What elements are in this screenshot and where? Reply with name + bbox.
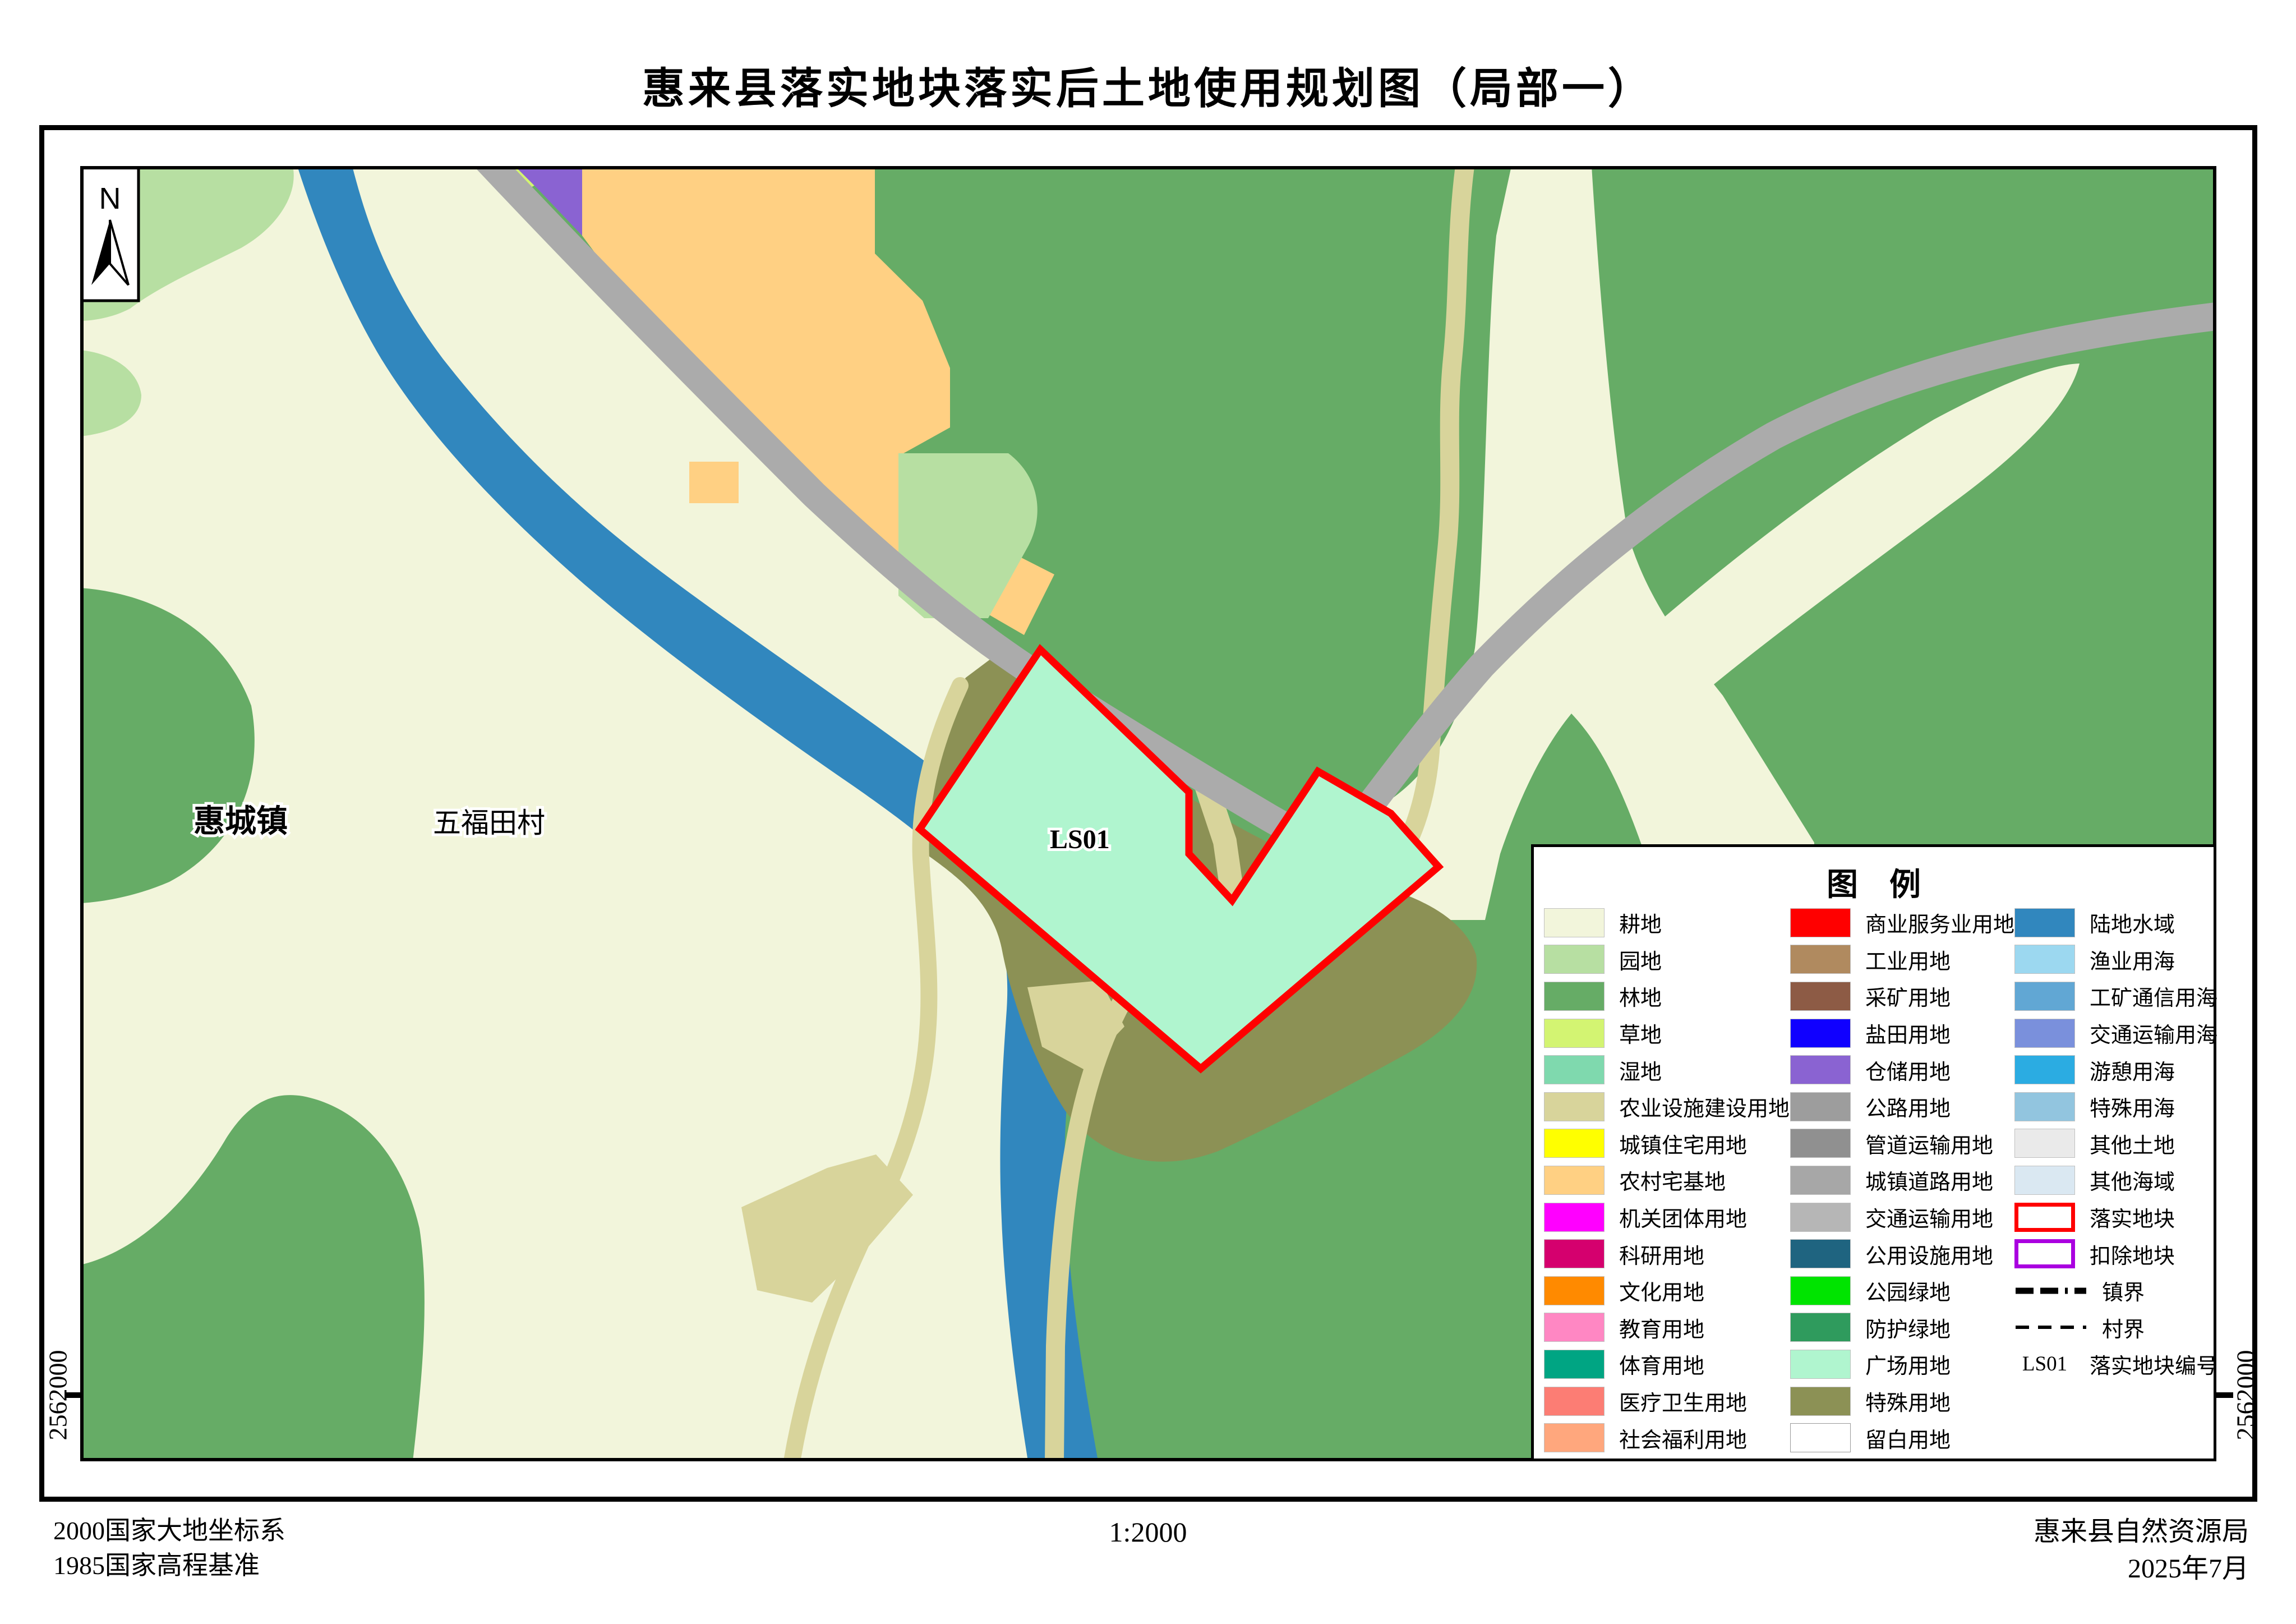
legend-label: 科研用地: [1619, 1239, 1704, 1269]
legend-label: 城镇道路用地: [1865, 1165, 1993, 1195]
legend-swatch: [1790, 1203, 1851, 1232]
legend-swatch: [1790, 908, 1851, 937]
town-label: 惠城镇: [193, 804, 288, 839]
legend-label: 其他土地: [2090, 1128, 2175, 1159]
legend-item: 社会福利用地: [1544, 1419, 1791, 1456]
legend-item: 耕地: [1544, 904, 1791, 941]
legend-item: 机关团体用地: [1544, 1199, 1791, 1236]
legend-item: 农业设施建设用地: [1544, 1088, 1791, 1125]
legend-label: 渔业用海: [2090, 944, 2175, 975]
legend-swatch: [1544, 1019, 1605, 1048]
plot-ls01-label: LS01: [1050, 825, 1110, 854]
legend-swatch: [1544, 1129, 1605, 1158]
legend-title: 图 例: [1534, 859, 2214, 905]
legend-item: 游憩用海: [2014, 1051, 2216, 1088]
legend-swatch: [1544, 1239, 1605, 1268]
legend-swatch: [2014, 1055, 2075, 1084]
legend-item: 镇界: [2014, 1272, 2216, 1309]
legend-item: 其他土地: [2014, 1125, 2216, 1162]
legend-label: 园地: [1619, 944, 1662, 975]
legend-swatch: [1544, 1055, 1605, 1084]
legend-item: 工矿通信用海: [2014, 978, 2216, 1015]
legend-swatch: [1790, 1313, 1851, 1342]
legend-label: 城镇住宅用地: [1619, 1128, 1747, 1159]
legend-swatch: [2014, 945, 2075, 974]
legend-label: 教育用地: [1619, 1312, 1704, 1343]
village-label: 五福田村: [433, 807, 545, 839]
legend-label: 防护绿地: [1865, 1312, 1951, 1343]
legend-item: 体育用地: [1544, 1346, 1791, 1383]
legend-label: 留白用地: [1865, 1423, 1951, 1453]
legend-item: 落实地块: [2014, 1199, 2216, 1236]
legend-swatch: [1544, 945, 1605, 974]
legend-item: 园地: [1544, 941, 1791, 978]
legend-label: 交通运输用海: [2090, 1018, 2217, 1048]
legend-item: 林地: [1544, 978, 1791, 1015]
legend-swatch: [1790, 1276, 1851, 1305]
legend-item: 采矿用地: [1790, 978, 2014, 1015]
legend-label: 农村宅基地: [1619, 1165, 1726, 1195]
legend-item: 农村宅基地: [1544, 1162, 1791, 1199]
legend-swatch: [2014, 1019, 2075, 1048]
legend-label: 耕地: [1619, 907, 1662, 938]
legend-item: 公园绿地: [1790, 1272, 2014, 1309]
legend-column-2: 商业服务业用地工业用地采矿用地盐田用地仓储用地公路用地管道运输用地城镇道路用地交…: [1790, 904, 2014, 1456]
legend-label: 采矿用地: [1865, 981, 1951, 1011]
legend-swatch: [2014, 982, 2075, 1011]
agency-name: 惠来县自然资源局: [2034, 1513, 2249, 1551]
legend-swatch: [1544, 1203, 1605, 1232]
legend-item: 村界: [2014, 1309, 2216, 1346]
legend-item: 科研用地: [1544, 1235, 1791, 1272]
legend-item: 防护绿地: [1790, 1309, 2014, 1346]
legend-label: 医疗卫生用地: [1619, 1386, 1747, 1416]
legend-label: 湿地: [1619, 1055, 1662, 1085]
legend-label: 落实地块编号: [2090, 1349, 2217, 1379]
legend-label: 镇界: [2102, 1275, 2145, 1306]
legend-swatch: [1544, 908, 1605, 937]
legend-swatch: [1790, 982, 1851, 1011]
legend-swatch: [1544, 1313, 1605, 1342]
legend-swatch: [1790, 1166, 1851, 1195]
legend-swatch: [1790, 1092, 1851, 1121]
legend-swatch: [1790, 1019, 1851, 1048]
legend-label: 扣除地块: [2090, 1239, 2175, 1269]
legend-item: 公用设施用地: [1790, 1235, 2014, 1272]
legend-swatch: [1544, 982, 1605, 1011]
publish-date: 2025年7月: [2034, 1551, 2249, 1588]
rural-homestead-square: [689, 462, 739, 503]
legend-label: 特殊用海: [2090, 1091, 2175, 1122]
legend-item: 城镇住宅用地: [1544, 1125, 1791, 1162]
legend-item: LS01落实地块编号: [2014, 1346, 2216, 1383]
legend-swatch: [1544, 1092, 1605, 1121]
village-boundary-symbol: [2014, 1313, 2087, 1342]
legend-label: 村界: [2102, 1312, 2145, 1343]
legend-item: 管道运输用地: [1790, 1125, 2014, 1162]
legend-item: 扣除地块: [2014, 1235, 2216, 1272]
legend-item: 公路用地: [1790, 1088, 2014, 1125]
legend-label: 体育用地: [1619, 1349, 1704, 1379]
legend-label: 广场用地: [1865, 1349, 1951, 1379]
town-boundary-symbol: [2014, 1276, 2087, 1305]
legend-item: 草地: [1544, 1015, 1791, 1052]
legend-swatch: [2014, 1166, 2075, 1195]
legend-item: 湿地: [1544, 1051, 1791, 1088]
legend-swatch: [1790, 1350, 1851, 1379]
legend-item: 仓储用地: [1790, 1051, 2014, 1088]
legend-swatch: [1544, 1387, 1605, 1416]
map-scale: 1:2000: [0, 1516, 2296, 1548]
legend-label: 盐田用地: [1865, 1018, 1951, 1048]
legend-swatch: [1544, 1350, 1605, 1379]
legend-label: 社会福利用地: [1619, 1423, 1747, 1453]
legend-label: 公园绿地: [1865, 1275, 1951, 1306]
legend-swatch: [1790, 1387, 1851, 1416]
legend-item: 城镇道路用地: [1790, 1162, 2014, 1199]
legend-swatch: [1790, 1055, 1851, 1084]
legend-label: 管道运输用地: [1865, 1128, 1993, 1159]
legend-item: 渔业用海: [2014, 941, 2216, 978]
legend-item: 教育用地: [1544, 1309, 1791, 1346]
legend-item: 盐田用地: [1790, 1015, 2014, 1052]
legend-label: 农业设施建设用地: [1619, 1091, 1790, 1122]
legend-item: 文化用地: [1544, 1272, 1791, 1309]
legend-swatch: [2014, 1092, 2075, 1121]
legend-swatch: [1544, 1166, 1605, 1195]
legend-label: 工业用地: [1865, 944, 1951, 975]
y-coordinate-left: 2562000: [43, 1350, 73, 1441]
legend-item: 交通运输用海: [2014, 1015, 2216, 1052]
legend-label: 游憩用海: [2090, 1055, 2175, 1085]
legend-swatch: [1790, 1129, 1851, 1158]
datum-line-2: 1985国家高程基准: [53, 1548, 285, 1583]
north-arrow: N: [81, 167, 139, 301]
legend-outline-swatch: [2014, 1239, 2075, 1268]
y-coordinate-right: 2562000: [2231, 1350, 2261, 1441]
page-title: 惠来县落实地块落实后土地使用规划图（局部一）: [0, 54, 2296, 116]
legend-label: 公用设施用地: [1865, 1239, 1993, 1269]
legend-swatch: [1790, 945, 1851, 974]
legend-swatch: [1790, 1239, 1851, 1268]
legend-swatch: [1790, 1423, 1851, 1452]
legend-item: 医疗卫生用地: [1544, 1383, 1791, 1420]
legend-label: 工矿通信用海: [2090, 981, 2217, 1011]
planning-map-page: { "title": "惠来县落实地块落实后土地使用规划图（局部一）", "ma…: [0, 0, 2296, 1624]
legend-label: 特殊用地: [1865, 1386, 1951, 1416]
legend-label: 陆地水域: [2090, 907, 2175, 938]
legend-box: 图 例 耕地园地林地草地湿地农业设施建设用地城镇住宅用地农村宅基地机关团体用地科…: [1531, 844, 2216, 1461]
legend-label: 交通运输用地: [1865, 1202, 1993, 1232]
legend-label: 公路用地: [1865, 1091, 1951, 1122]
legend-item: 留白用地: [1790, 1419, 2014, 1456]
legend-item: 特殊用地: [1790, 1383, 2014, 1420]
legend-item: 交通运输用地: [1790, 1199, 2014, 1236]
legend-swatch: [1544, 1276, 1605, 1305]
legend-outline-swatch: [2014, 1203, 2075, 1232]
plot-code-symbol: LS01: [2014, 1352, 2075, 1376]
legend-item: 其他海域: [2014, 1162, 2216, 1199]
legend-label: 草地: [1619, 1018, 1662, 1048]
legend-label: 机关团体用地: [1619, 1202, 1747, 1232]
legend-swatch: [2014, 1129, 2075, 1158]
legend-column-1: 耕地园地林地草地湿地农业设施建设用地城镇住宅用地农村宅基地机关团体用地科研用地文…: [1544, 904, 1791, 1456]
legend-label: 林地: [1619, 981, 1662, 1011]
footer-agency: 惠来县自然资源局 2025年7月: [2034, 1513, 2249, 1588]
legend-label: 落实地块: [2090, 1202, 2175, 1232]
legend-column-3: 陆地水域渔业用海工矿通信用海交通运输用海游憩用海特殊用海其他土地其他海域落实地块…: [2014, 904, 2216, 1383]
legend-label: 商业服务业用地: [1865, 907, 2014, 938]
legend-label: 其他海域: [2090, 1165, 2175, 1195]
legend-item: 陆地水域: [2014, 904, 2216, 941]
legend-item: 商业服务业用地: [1790, 904, 2014, 941]
legend-swatch: [1544, 1423, 1605, 1452]
legend-label: 仓储用地: [1865, 1055, 1951, 1085]
legend-item: 广场用地: [1790, 1346, 2014, 1383]
legend-label: 文化用地: [1619, 1275, 1704, 1306]
legend-item: 特殊用海: [2014, 1088, 2216, 1125]
legend-swatch: [2014, 908, 2075, 937]
legend-item: 工业用地: [1790, 941, 2014, 978]
north-arrow-label: N: [99, 182, 121, 215]
